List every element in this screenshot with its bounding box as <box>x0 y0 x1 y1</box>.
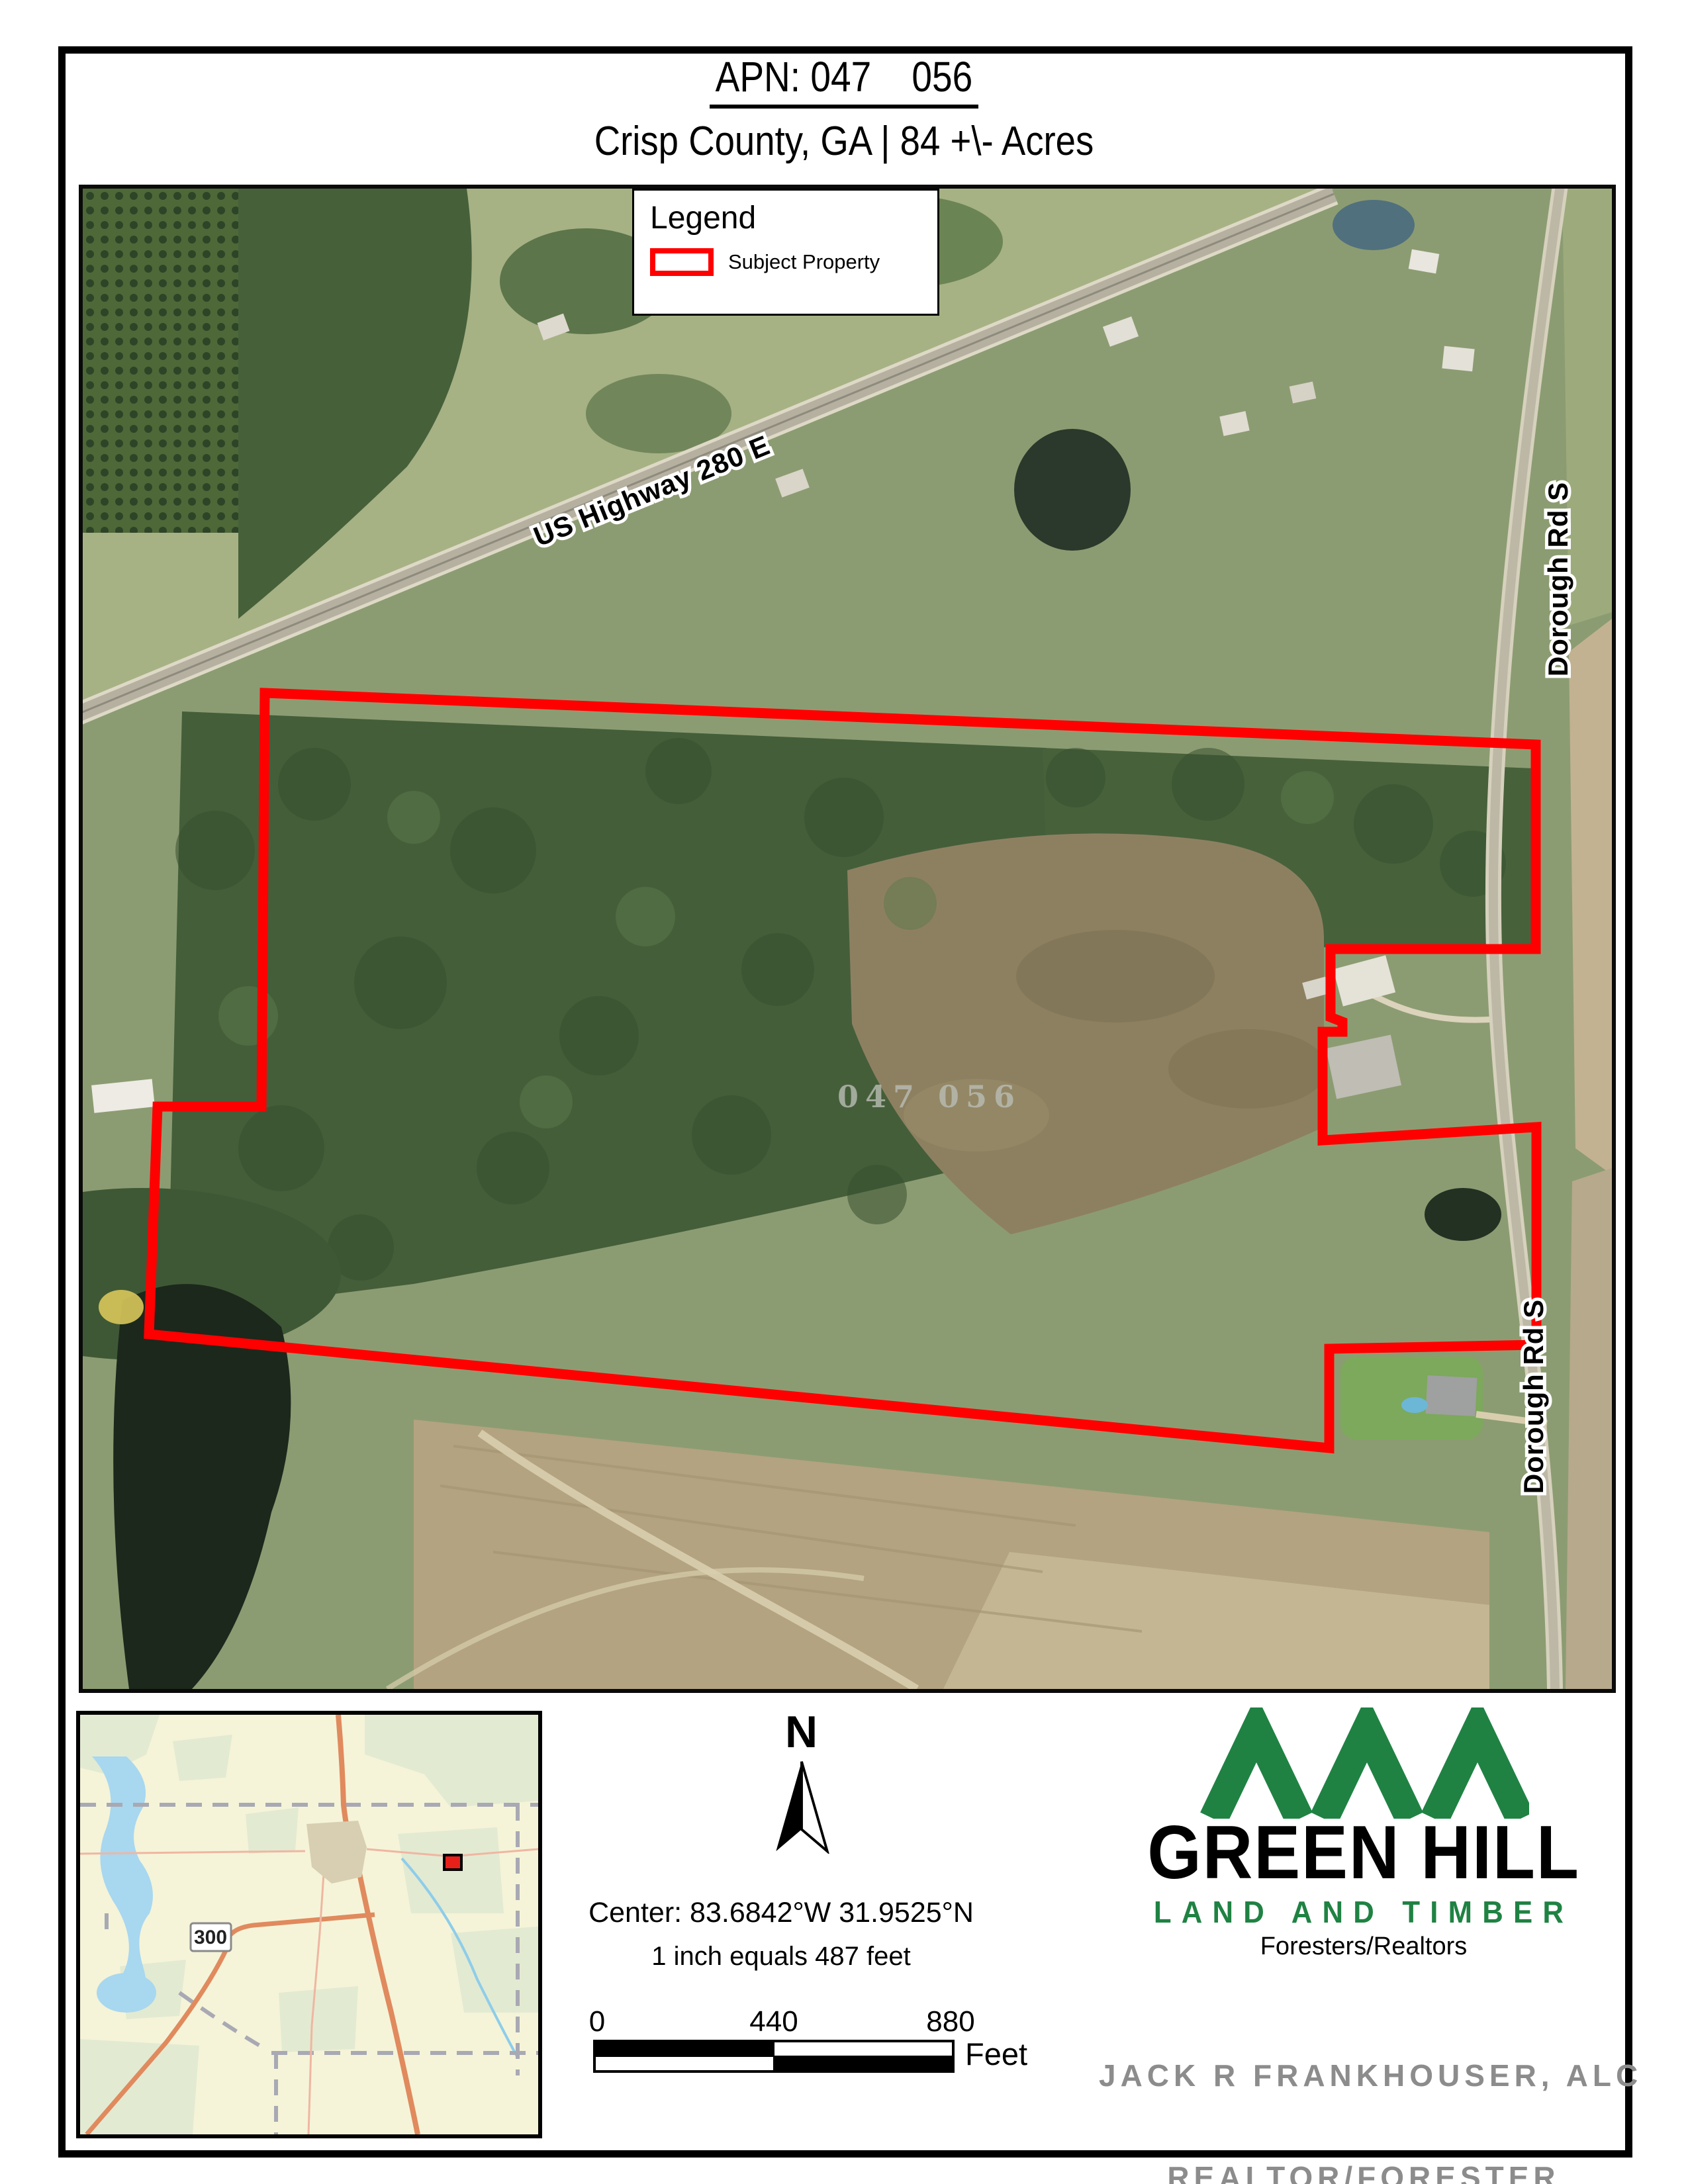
road-label-upper: Dorough Rd S <box>1542 482 1573 676</box>
scale-unit-label: Feet <box>965 2036 1027 2072</box>
route-shield: 300 <box>191 1923 231 1951</box>
scale-bar-graphic <box>593 2040 955 2073</box>
legend-title: Legend <box>650 200 937 236</box>
legend-item-label: Subject Property <box>728 250 880 274</box>
company-subtitle: Foresters/Realtors <box>1099 1933 1628 1961</box>
subject-property-swatch <box>650 248 714 276</box>
aerial-map: US Highway 280 E Dorough Rd S Dorough Rd… <box>79 185 1616 1693</box>
road-label-lower: Dorough Rd S <box>1518 1299 1549 1494</box>
green-hill-peaks-icon <box>1198 1707 1529 1819</box>
pond-topright <box>1333 200 1415 250</box>
page-title: APN: 047 056 <box>710 52 978 109</box>
company-name: GREEN HILL <box>1120 1819 1607 1888</box>
map-center-coordinates: Center: 83.6842°W 31.9525°N <box>516 1897 1046 1929</box>
parcel-watermark: 047 056 <box>837 1079 1021 1115</box>
agent-contact-block: JACK R FRANKHOUSER, ALC REALTOR/FORESTER… <box>1099 1991 1628 2184</box>
header: APN: 047 056 Crisp County, GA | 84 +\- A… <box>0 52 1688 165</box>
scale-bar: 0 440 880 Feet <box>593 2005 955 2073</box>
property-location-marker <box>444 1855 461 1870</box>
north-label: N <box>753 1706 849 1758</box>
map-scale-ratio: 1 inch equals 487 feet <box>516 1942 1046 1972</box>
north-arrow: N <box>753 1706 849 1857</box>
scale-tick-880: 880 <box>926 2005 974 2038</box>
company-branding: GREEN HILL LAND AND TIMBER Foresters/Rea… <box>1099 1707 1628 2184</box>
sand-pit <box>99 1290 144 1324</box>
inset-map-canvas: 300 <box>80 1715 538 2134</box>
orchard-rows <box>83 189 238 533</box>
company-tagline: LAND AND TIMBER <box>1112 1894 1615 1930</box>
north-arrow-icon <box>762 1758 841 1854</box>
legend: Legend Subject Property <box>632 189 939 316</box>
pond-upper <box>1014 429 1131 551</box>
scale-tick-440: 440 <box>749 2005 798 2038</box>
agent-name: JACK R FRANKHOUSER, ALC <box>1099 2059 1628 2093</box>
scale-tick-0: 0 <box>589 2005 605 2038</box>
aerial-imagery: US Highway 280 E Dorough Rd S Dorough Rd… <box>83 189 1612 1689</box>
field-right <box>1569 619 1612 1175</box>
route-shield-number: 300 <box>194 1927 227 1948</box>
pond-farm <box>1425 1188 1501 1241</box>
page-subtitle: Crisp County, GA | 84 +\- Acres <box>101 118 1587 165</box>
map-document-page: APN: 047 056 Crisp County, GA | 84 +\- A… <box>0 0 1688 2184</box>
agent-title: REALTOR/FORESTER <box>1099 2161 1628 2184</box>
inset-locator-map: 300 <box>76 1711 542 2138</box>
